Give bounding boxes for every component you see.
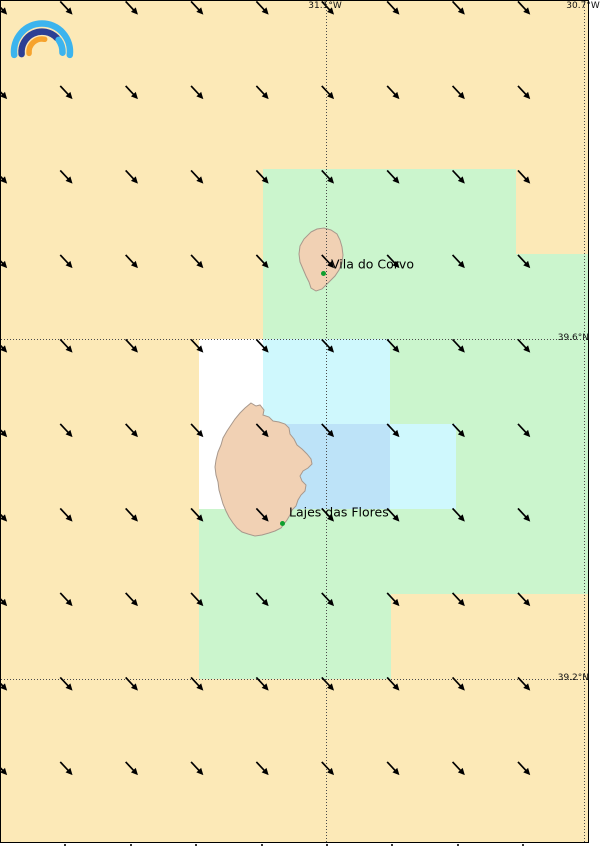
rainbow-logo bbox=[6, 12, 80, 60]
latitude-label: 39.2°N bbox=[558, 673, 589, 683]
latitude-label: 39.6°N bbox=[558, 333, 589, 343]
town-label: Lajes das Flores bbox=[289, 505, 389, 520]
weather-map-screen: 31.1°W30.7°W39.6°N39.2°NVila do CorvoLaj… bbox=[0, 0, 600, 846]
town-dot bbox=[321, 271, 326, 276]
logo-middle-arc-tip bbox=[59, 40, 63, 53]
logo-inner-arc bbox=[29, 39, 45, 53]
town-dot bbox=[280, 521, 285, 526]
longitude-label: 31.1°W bbox=[308, 1, 341, 11]
longitude-label: 30.7°W bbox=[566, 1, 599, 11]
labels-layer: 31.1°W30.7°W39.6°N39.2°NVila do CorvoLaj… bbox=[0, 0, 600, 846]
town-label: Vila do Corvo bbox=[331, 257, 414, 272]
